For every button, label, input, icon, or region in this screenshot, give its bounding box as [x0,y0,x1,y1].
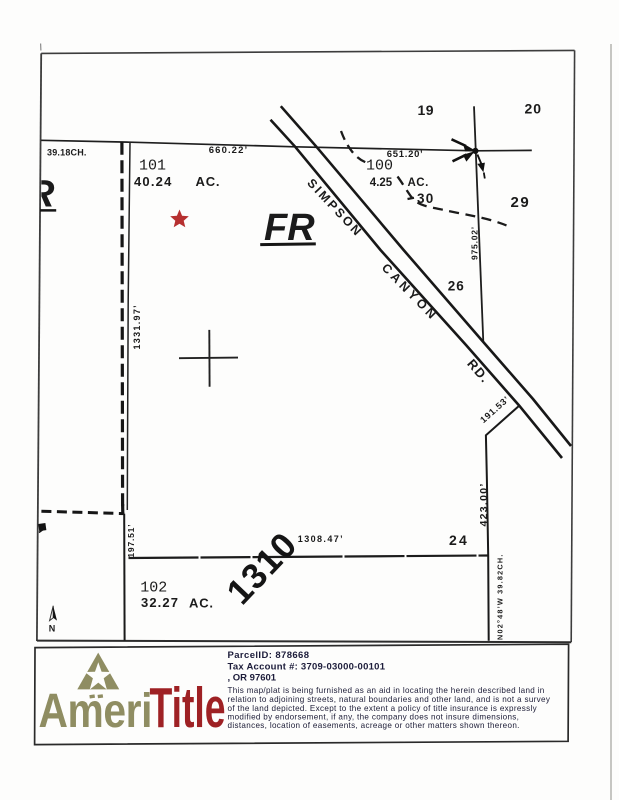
svg-text:19: 19 [418,102,435,118]
svg-text:40.24: 40.24 [134,174,173,189]
svg-text:distances, location of easemen: distances, location of easements, acreag… [228,721,520,730]
svg-text:32.27: 32.27 [141,595,179,610]
svg-text:N02°48’W 39.82CH.: N02°48’W 39.82CH. [495,553,504,640]
svg-text:FR: FR [264,207,315,249]
svg-text:197.51’: 197.51’ [126,524,136,558]
svg-text:AC.: AC. [189,595,214,610]
svg-text:30: 30 [417,191,435,206]
svg-text:101: 101 [139,157,166,174]
svg-text:Ameri: Ameri [39,685,152,738]
svg-text:AC.: AC. [408,177,429,189]
svg-text:Tax Account #: 3709-03000-0010: Tax Account #: 3709-03000-00101 [228,662,386,673]
svg-text:1308.47’: 1308.47’ [298,534,344,544]
svg-text:AC.: AC. [196,174,221,189]
svg-text:29: 29 [511,194,531,211]
svg-text:Title: Title [150,676,226,740]
svg-text:660.22’: 660.22’ [209,145,248,156]
svg-text:4.25: 4.25 [370,177,393,189]
svg-text:This map/plat is being furnish: This map/plat is being furnished as an a… [228,686,545,695]
svg-text:1331.97’: 1331.97’ [132,304,142,349]
svg-text:20: 20 [525,101,543,117]
svg-text:ParcelID: 878668: ParcelID: 878668 [228,650,310,661]
svg-text:975.02’: 975.02’ [470,226,480,260]
svg-text:100: 100 [366,158,393,175]
svg-text:26: 26 [448,279,465,294]
svg-text:N: N [49,623,56,633]
svg-text:modified by endorsement, if an: modified by endorsement, if any, the com… [228,712,520,721]
svg-text:relation to adjoining streets,: relation to adjoining streets, natural b… [228,695,551,704]
svg-text:24: 24 [449,532,469,548]
svg-text:, OR 97601: , OR 97601 [228,673,277,684]
svg-text:423.00’: 423.00’ [478,482,490,526]
svg-text:39.18CH.: 39.18CH. [47,147,87,157]
